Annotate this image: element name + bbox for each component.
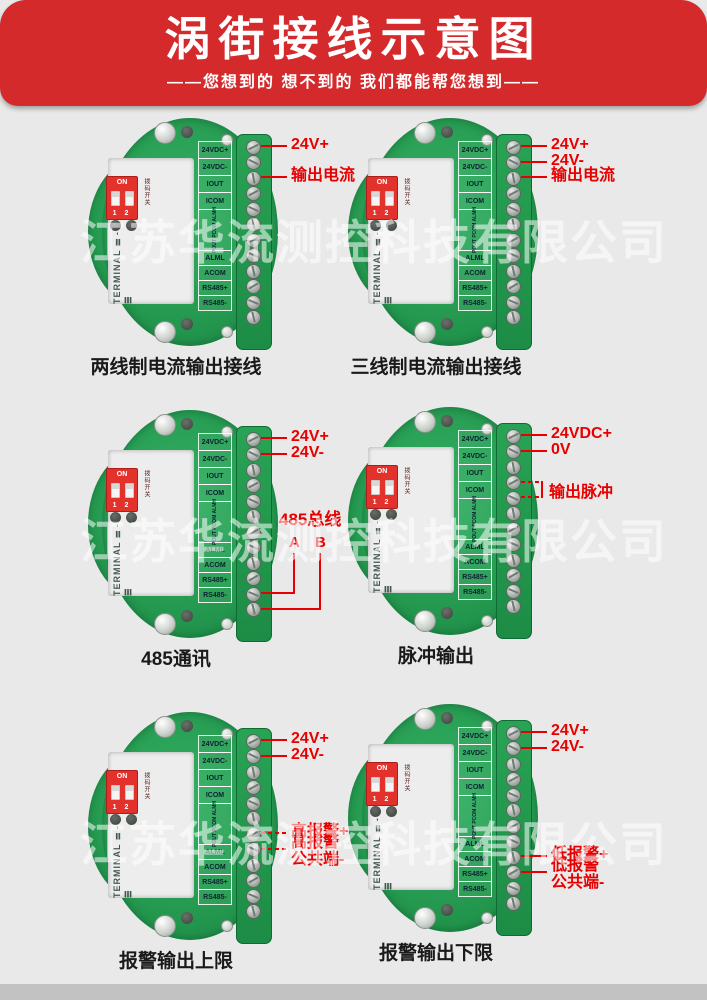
wire-line [261, 848, 287, 850]
wire-line [261, 832, 287, 834]
annotation-label: 输出脉冲 [549, 478, 613, 502]
annotation-layer: 24V+24V-485总线AB [88, 410, 368, 672]
wire-line [261, 453, 287, 455]
wire-line [521, 747, 547, 749]
wire-line [521, 176, 547, 178]
footer-strip [0, 984, 707, 1000]
wire-line [521, 145, 547, 147]
wire-line [261, 739, 287, 741]
board-485-comm: ON 1 2 拨码开关 TERMINAL Ⅱ-Ⅲ 24VDC+24VDC-IOU… [88, 410, 368, 672]
wire-line [521, 855, 547, 857]
board-pulse-output: ON 1 2 拨码开关 TERMINAL Ⅱ-Ⅲ 24VDC+24VDC-IOU… [348, 407, 628, 669]
annotation-layer: 24V+24V-高报警+高报警公共端- [88, 712, 368, 974]
annotation-label: 24V+ [291, 136, 329, 154]
page-subtitle: ——您想到的 想不到的 我们都能帮您想到—— [167, 68, 540, 92]
wire-line [521, 731, 547, 733]
board-two-wire-current: ON 1 2 拨码开关 TERMINAL Ⅱ-Ⅲ 24VDC+24VDC-IOU… [88, 118, 368, 380]
bus-title: 485总线 [279, 505, 341, 530]
bus-wire-b-label: B [315, 534, 326, 551]
wire-line [261, 145, 287, 147]
annotation-label: 输出电流 [291, 167, 355, 185]
board-three-wire-current: ON 1 2 拨码开关 TERMINAL Ⅱ-Ⅲ 24VDC+24VDC-IOU… [348, 118, 628, 380]
wire-line [521, 450, 547, 452]
wire-line [521, 161, 547, 163]
annotation-layer: 24V+输出电流 [88, 118, 368, 380]
annotation-layer: 24VDC+0V输出脉冲 [348, 407, 628, 669]
board-alarm-low: ON 1 2 拨码开关 TERMINAL Ⅱ-Ⅲ 24VDC+24VDC-IOU… [348, 704, 628, 966]
bus-wire-a-label: A [289, 534, 300, 551]
annotation-label: 24V- [291, 444, 324, 462]
annotation-label: 高报警公共端- [291, 834, 344, 870]
wire-line [521, 871, 547, 873]
wire-line [261, 176, 287, 178]
page-title: 涡街接线示意图 [165, 14, 543, 65]
annotation-label: 0V [551, 441, 571, 459]
annotation-label: 低报警公共端- [551, 857, 604, 893]
annotation-label: 输出电流 [551, 167, 615, 185]
board-alarm-high: ON 1 2 拨码开关 TERMINAL Ⅱ-Ⅲ 24VDC+24VDC-IOU… [88, 712, 368, 974]
annotation-label: 24V- [291, 746, 324, 764]
wire-line [261, 437, 287, 439]
wire-line [261, 755, 287, 757]
annotation-layer: 24V+24V-低报警+低报警公共端- [348, 704, 628, 966]
annotation-layer: 24V+24V-输出电流 [348, 118, 628, 380]
wire-line [521, 434, 547, 436]
header-banner: 涡街接线示意图 ——您想到的 想不到的 我们都能帮您想到—— [0, 0, 707, 106]
page: 涡街接线示意图 ——您想到的 想不到的 我们都能帮您想到—— ON 1 2 拨码… [0, 0, 707, 1000]
annotation-label: 24V- [551, 738, 584, 756]
